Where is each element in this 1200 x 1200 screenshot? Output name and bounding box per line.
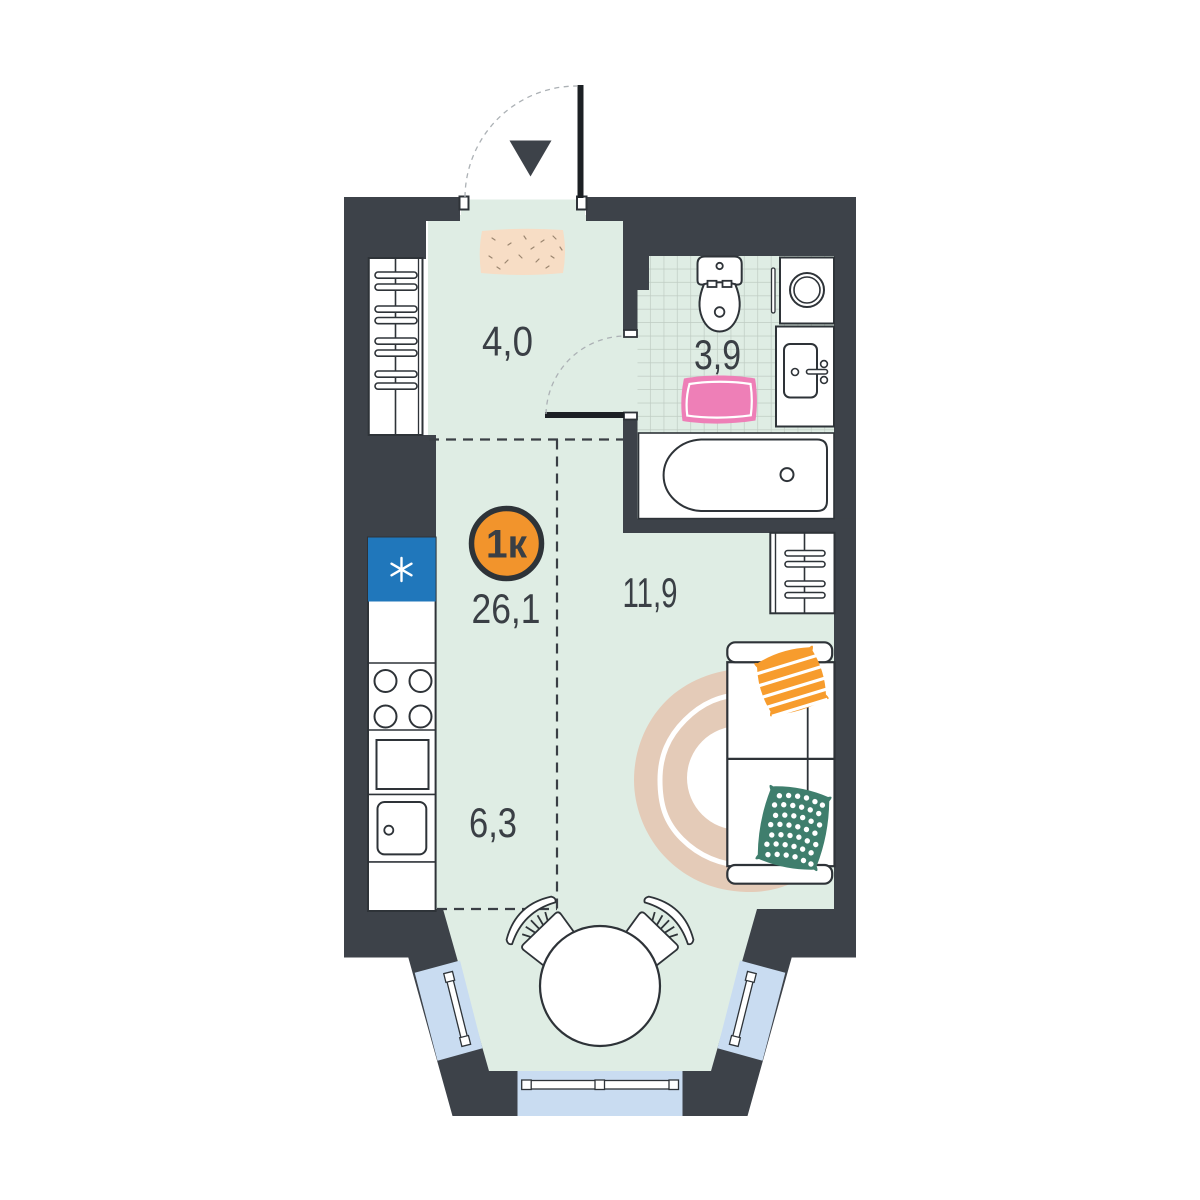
svg-text:11,9: 11,9 [623,569,678,616]
svg-text:26,1: 26,1 [472,585,541,632]
svg-text:1к: 1к [486,523,528,567]
svg-text:3,9: 3,9 [694,331,741,378]
svg-text:6,3: 6,3 [469,799,517,846]
svg-text:4,0: 4,0 [482,318,533,365]
